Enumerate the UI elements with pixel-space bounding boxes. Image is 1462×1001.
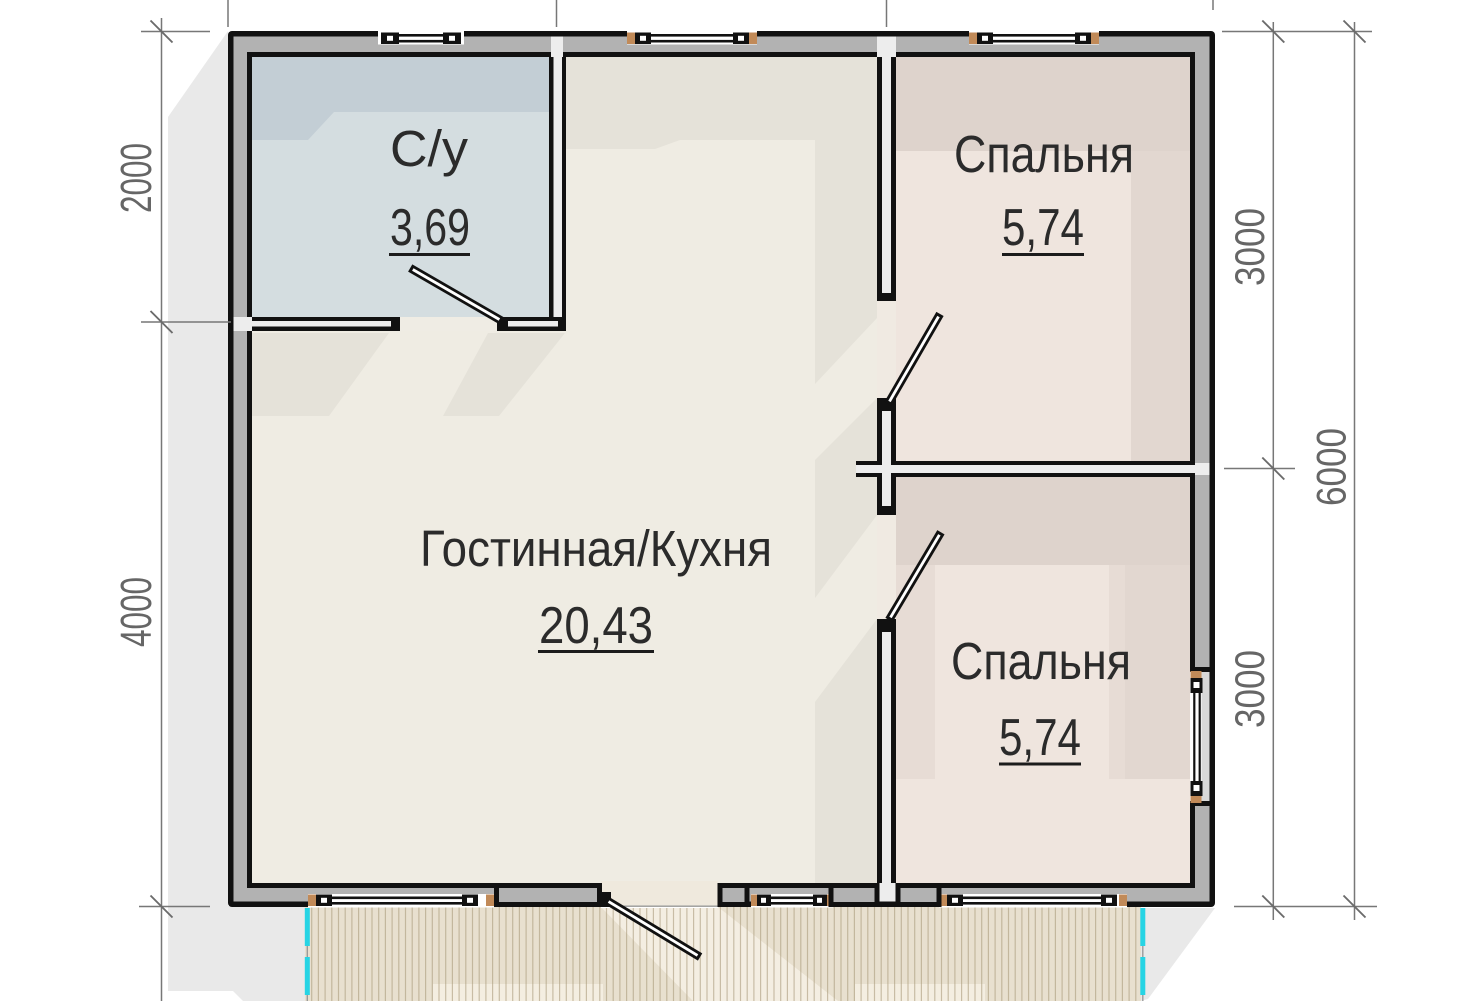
- svg-text:С/у: С/у: [390, 120, 469, 177]
- svg-text:20,43: 20,43: [539, 597, 653, 655]
- svg-text:3000: 3000: [1226, 208, 1273, 286]
- svg-text:5,74: 5,74: [1002, 199, 1084, 257]
- svg-text:3000: 3000: [1226, 650, 1273, 728]
- svg-text:2000: 2000: [112, 143, 161, 213]
- svg-text:Спальня: Спальня: [951, 633, 1131, 691]
- svg-text:Гостинная/Кухня: Гостинная/Кухня: [420, 520, 772, 577]
- svg-text:5,74: 5,74: [999, 709, 1081, 767]
- svg-text:6000: 6000: [1308, 428, 1355, 506]
- svg-text:Спальня: Спальня: [954, 126, 1134, 184]
- svg-text:3,69: 3,69: [390, 199, 470, 257]
- svg-text:4000: 4000: [112, 577, 161, 647]
